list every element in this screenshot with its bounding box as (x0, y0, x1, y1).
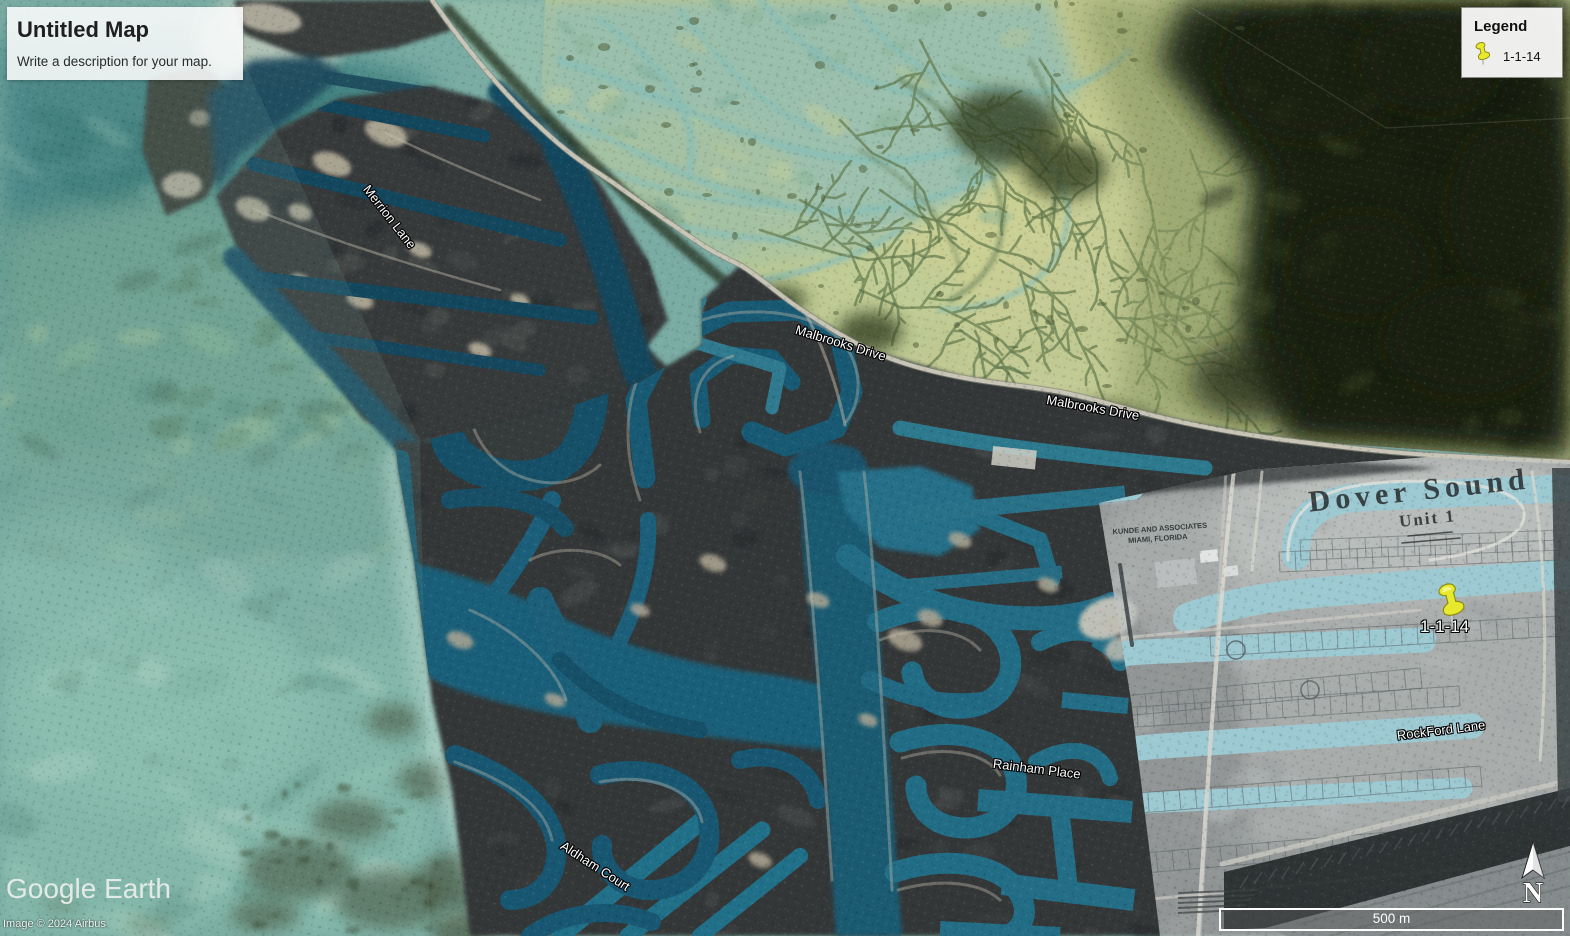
svg-text:N: N (1523, 878, 1543, 909)
